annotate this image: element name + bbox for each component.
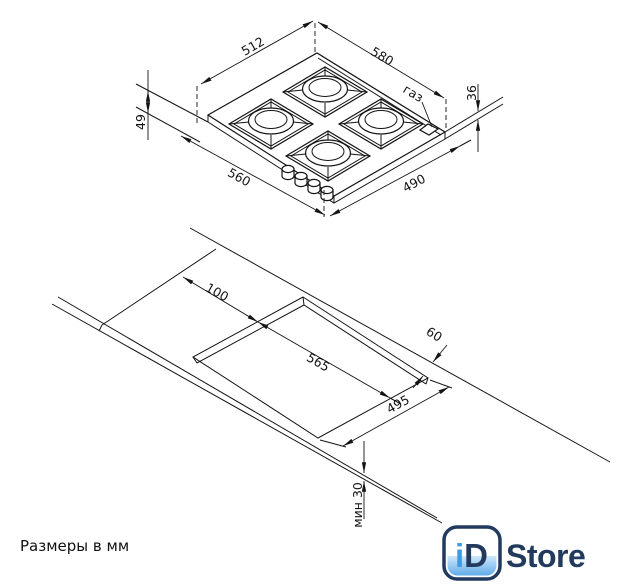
dimension-36-label: 36 [464,85,479,101]
logo-wordmark: Store [506,538,585,574]
dimension-min-30: мин 30 [350,441,365,528]
control-knob-1 [282,165,294,179]
body-extension-line-right-upper [445,97,503,132]
worktop-cutout-view: 100 565 495 60 мин 30 [52,228,610,528]
cutout-opening [193,297,428,438]
dimension-min-30-label: мин 30 [350,482,365,528]
dimension-560-label: 560 [225,165,253,190]
dimension-490-label: 490 [400,171,428,195]
dimension-495: 495 [320,380,452,447]
logo-badge-text: iD [455,537,488,574]
dimension-580-label: 580 [368,44,396,69]
control-knob-3 [308,179,320,193]
dimension-565: 565 [258,322,401,404]
dimension-100-label: 100 [203,280,231,305]
dimension-565-label: 565 [304,350,332,375]
dimension-49: 49 [133,70,148,140]
worktop-left-end-tick [99,325,102,331]
dimension-100: 100 [183,277,258,322]
worktop-front-edge [58,297,437,518]
worktop-back-edge [190,228,610,462]
control-knob-4 [321,186,333,200]
technical-drawing-canvas: газ 512 580 560 490 [0,0,629,587]
dimension-495-label: 495 [384,392,412,417]
units-caption: Размеры в мм [20,537,129,555]
idstore-logo: iD Store [444,527,585,579]
dimension-60-label: 60 [424,324,445,345]
hob-isometric-view: газ 512 580 560 490 [133,21,503,217]
drawing-page: газ 512 580 560 490 [0,0,629,587]
dimension-49-label: 49 [133,114,148,130]
gas-pipe-line [445,104,503,139]
dimension-36: 36 [464,84,479,152]
control-knob-2 [295,172,307,186]
worktop-front-bottom-edge [52,304,442,523]
